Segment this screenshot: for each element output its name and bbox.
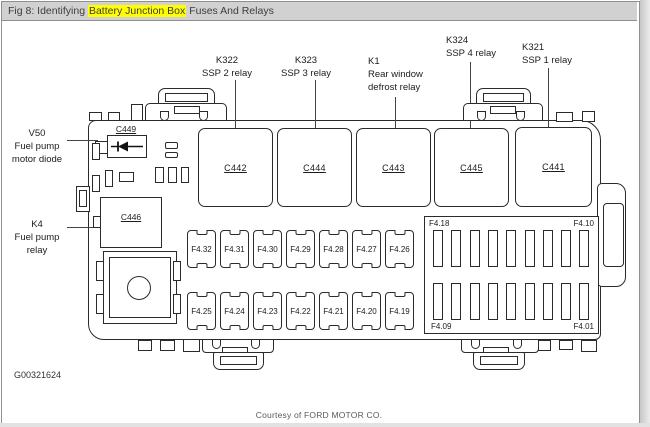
mounting-tab [131, 104, 143, 121]
component-block [181, 167, 189, 183]
mounting-tab [183, 339, 200, 352]
panel-label-bottom-left: F4.09 [431, 322, 451, 331]
component-block [165, 152, 178, 158]
component-block [92, 175, 100, 192]
mounting-tab [108, 112, 120, 121]
side-connector-inner [79, 190, 87, 207]
mounting-bracket-bottom-left-inner [220, 356, 257, 365]
mounting-tab [138, 340, 152, 351]
relay-connector-c441: C441 [515, 127, 592, 207]
scrollbar-track[interactable] [640, 0, 650, 427]
leader-line-k323 [315, 80, 316, 128]
relay-connector-c446: C446 [100, 197, 162, 248]
figure-id: G00321624 [14, 370, 61, 380]
callout-k4-desc1: Fuel pump [8, 231, 66, 244]
mounting-tab [89, 112, 102, 121]
window-edge [0, 423, 650, 427]
callout-k322-desc: SSP 2 relay [185, 67, 269, 80]
figure-viewer: Fig 8: Identifying Battery Junction Box … [0, 0, 650, 427]
mini-fuse-slot [525, 230, 535, 267]
leader-line-k321 [548, 68, 549, 127]
mounting-bracket-bottom-right-inner [480, 356, 518, 365]
fuse-f4-27: F4.27 [352, 230, 381, 268]
panel-label-bottom-right: F4.01 [574, 322, 594, 331]
mounting-bracket-top-left-foot [160, 111, 169, 121]
diode-icon [110, 139, 144, 154]
component-block [165, 142, 178, 149]
mounting-tab [556, 112, 573, 122]
connector-label-c449: C449 [105, 124, 147, 134]
fuse-f4-30: F4.30 [253, 230, 282, 268]
callout-k321: K321 SSP 1 relay [522, 41, 572, 67]
leader-line-k1 [395, 97, 396, 128]
callout-k324: K324 SSP 4 relay [446, 34, 496, 60]
fuse-label: F4.20 [356, 307, 376, 316]
mini-fuse-slot [470, 283, 480, 320]
fuse-f4-23: F4.23 [253, 292, 282, 330]
callout-k4-desc2: relay [8, 244, 66, 257]
mounting-tab [160, 340, 175, 351]
figure-title-bar: Fig 8: Identifying Battery Junction Box … [2, 2, 637, 21]
callout-v50-desc1: Fuel pump [8, 140, 66, 153]
component-block [119, 172, 134, 182]
panel-label-top-right: F4.10 [574, 219, 594, 228]
title-prefix: Fig 8: Identifying [8, 5, 88, 17]
relay-connector-c444: C444 [277, 128, 352, 207]
mounting-bracket-bottom-left-foot [251, 339, 260, 349]
mini-fuse-slot [433, 283, 443, 320]
connector-label: C444 [303, 163, 326, 173]
mounting-bracket-top-right-foot [516, 111, 525, 121]
connector-label: C443 [382, 163, 405, 173]
mini-fuse-slot [433, 230, 443, 267]
mounting-bracket-top-left-foot [199, 111, 208, 121]
relay-connector-c443: C443 [356, 128, 431, 207]
mini-fuse-slot [525, 283, 535, 320]
relay-socket-hole [127, 276, 151, 300]
fuse-f4-20: F4.20 [352, 292, 381, 330]
callout-v50-desc2: motor diode [8, 153, 66, 166]
fuse-label: F4.23 [257, 307, 277, 316]
courtesy-note: Courtesy of FORD MOTOR CO. [0, 410, 638, 420]
fuse-label: F4.19 [389, 307, 409, 316]
mounting-bracket-bottom-left-foot [212, 339, 221, 349]
fuse-label: F4.27 [356, 245, 376, 254]
fuse-f4-28: F4.28 [319, 230, 348, 268]
socket-tab [173, 261, 181, 281]
side-handle-inner [603, 203, 624, 267]
connector-label: C441 [542, 162, 565, 172]
mini-fuse-slot [561, 283, 571, 320]
mini-fuse-slot [506, 283, 516, 320]
connector-label: C442 [224, 163, 247, 173]
callout-v50: V50 Fuel pump motor diode [8, 127, 66, 166]
fuse-label: F4.31 [224, 245, 244, 254]
mounting-tab [581, 340, 597, 352]
component-block [105, 170, 113, 187]
fuse-label: F4.28 [323, 245, 343, 254]
connector-label: C446 [101, 212, 161, 222]
callout-k1-desc1: Rear window [368, 68, 423, 81]
component-block [168, 167, 177, 183]
fuse-label: F4.32 [191, 245, 211, 254]
fuse-f4-22: F4.22 [286, 292, 315, 330]
callout-k1-id: K1 [368, 55, 423, 68]
fuse-f4-24: F4.24 [220, 292, 249, 330]
fuse-f4-32: F4.32 [187, 230, 216, 268]
fuse-f4-31: F4.31 [220, 230, 249, 268]
callout-k1: K1 Rear window defrost relay [368, 55, 423, 94]
leader-line-v50 [67, 140, 98, 141]
fusebox-diagram: K322 SSP 2 relay K323 SSP 3 relay K1 Rea… [0, 0, 650, 427]
mounting-bracket-top-right-inner [483, 93, 524, 102]
mounting-bracket-top-left-tab [174, 106, 200, 114]
callout-k321-id: K321 [522, 41, 572, 54]
fuse-label: F4.29 [290, 245, 310, 254]
title-highlight: Battery Junction Box [88, 5, 186, 17]
callout-k1-desc2: defrost relay [368, 81, 423, 94]
mini-fuse-slot [543, 283, 553, 320]
title-suffix: Fuses And Relays [186, 5, 274, 17]
callout-k324-id: K324 [446, 34, 496, 47]
fuse-label: F4.30 [257, 245, 277, 254]
callout-k323-id: K323 [264, 54, 348, 67]
callout-k324-desc: SSP 4 relay [446, 47, 496, 60]
relay-connector-c445: C445 [434, 128, 509, 207]
mounting-bracket-bottom-right-foot [513, 339, 522, 349]
fuse-f4-19: F4.19 [385, 292, 414, 330]
mini-fuse-slot [451, 230, 461, 267]
callout-k322-id: K322 [185, 54, 269, 67]
mini-fuse-slot [488, 283, 498, 320]
relay-connector-c442: C442 [198, 128, 273, 207]
callout-k4: K4 Fuel pump relay [8, 218, 66, 257]
panel-label-top-left: F4.18 [429, 219, 449, 228]
mounting-tab [538, 340, 551, 351]
mounting-tab [582, 111, 595, 122]
leader-line-k322 [235, 80, 236, 128]
callout-k323-desc: SSP 3 relay [264, 67, 348, 80]
fuse-label: F4.21 [323, 307, 343, 316]
callout-k323: K323 SSP 3 relay [264, 54, 348, 80]
mini-fuse-slot [561, 230, 571, 267]
mounting-tab [559, 340, 573, 350]
mounting-bracket-top-left-inner [165, 93, 208, 102]
callout-k4-id: K4 [8, 218, 66, 231]
mini-fuse-slot [543, 230, 553, 267]
mini-fuse-slot [579, 230, 589, 267]
mini-fuse-slot [579, 283, 589, 320]
fuse-f4-21: F4.21 [319, 292, 348, 330]
callout-k321-desc: SSP 1 relay [522, 54, 572, 67]
mounting-bracket-top-right-tab [490, 106, 516, 114]
socket-tab [96, 261, 104, 281]
fuse-label: F4.24 [224, 307, 244, 316]
connector-label: C445 [460, 163, 483, 173]
mini-fuse-slot [470, 230, 480, 267]
right-fuse-panel: F4.18 F4.10 F4.09 F4.01 [424, 216, 599, 334]
fuse-f4-25: F4.25 [187, 292, 216, 330]
mounting-bracket-bottom-right-foot [471, 339, 480, 349]
mini-fuse-slot [451, 283, 461, 320]
mounting-bracket-top-right-foot [477, 111, 486, 121]
fuse-label: F4.22 [290, 307, 310, 316]
socket-tab [96, 294, 104, 314]
mini-fuse-slot [488, 230, 498, 267]
fuse-f4-29: F4.29 [286, 230, 315, 268]
callout-v50-id: V50 [8, 127, 66, 140]
socket-tab [173, 294, 181, 314]
fuse-label: F4.25 [191, 307, 211, 316]
component-block [155, 167, 164, 183]
fuse-f4-26: F4.26 [385, 230, 414, 268]
callout-k322: K322 SSP 2 relay [185, 54, 269, 80]
mini-fuse-slot [506, 230, 516, 267]
component-block [92, 143, 100, 160]
fuse-label: F4.26 [389, 245, 409, 254]
